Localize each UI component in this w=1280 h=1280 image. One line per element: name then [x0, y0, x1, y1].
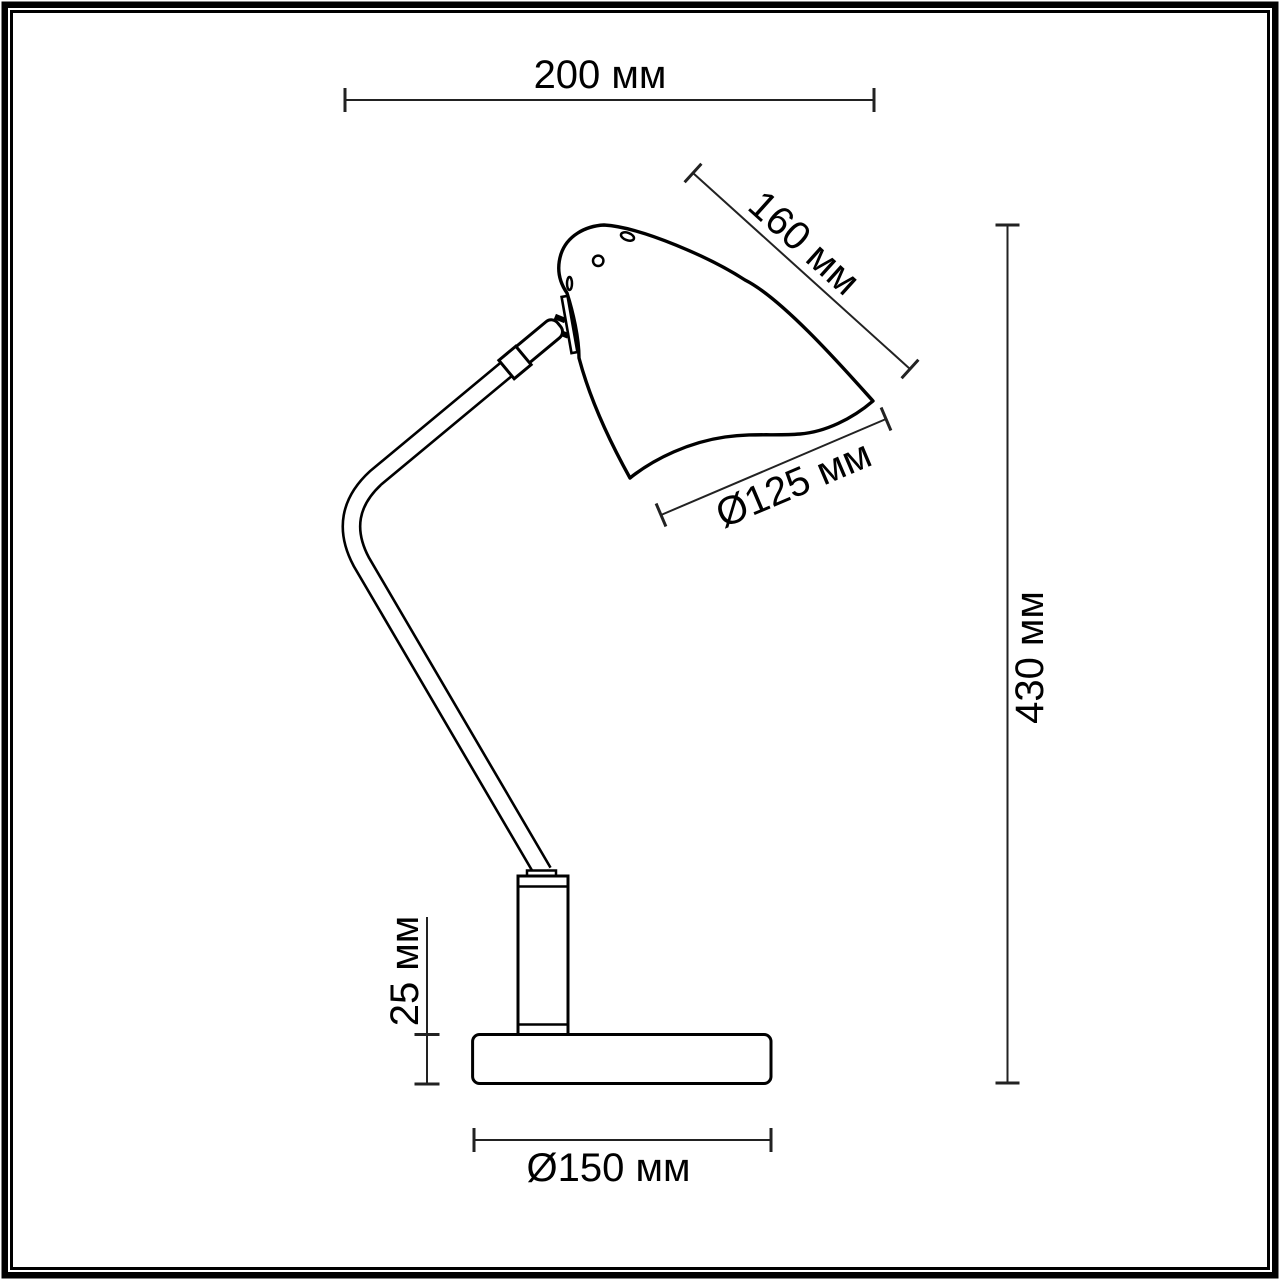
svg-text:25 мм: 25 мм: [383, 916, 427, 1027]
svg-text:200 мм: 200 мм: [534, 53, 667, 97]
svg-text:430 мм: 430 мм: [1008, 591, 1052, 724]
svg-text:Ø150 мм: Ø150 мм: [527, 1146, 691, 1190]
